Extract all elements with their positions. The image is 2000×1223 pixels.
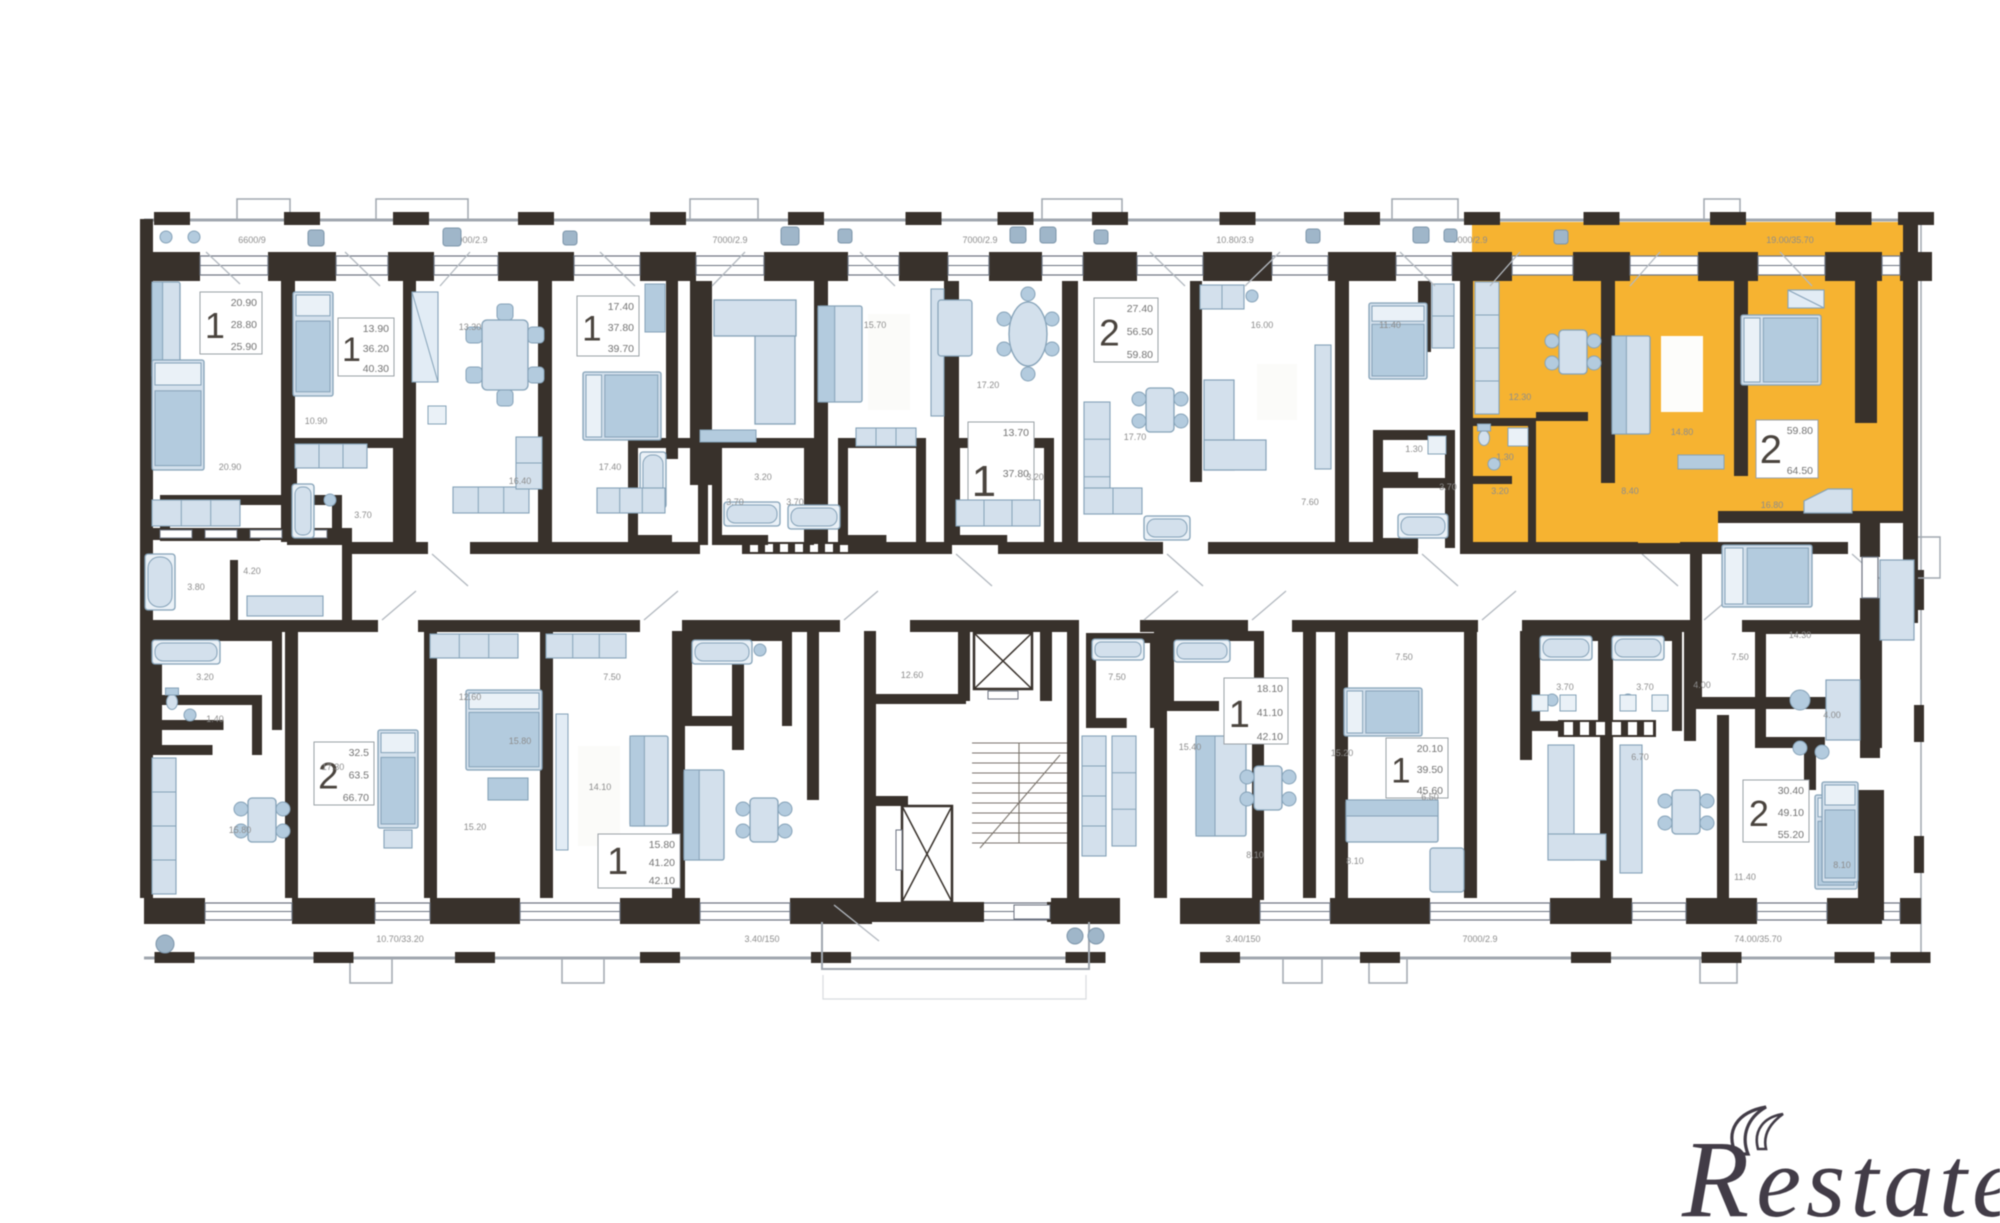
svg-text:3.70: 3.70 <box>1556 682 1574 692</box>
svg-text:17.40: 17.40 <box>599 462 622 472</box>
svg-text:27.40: 27.40 <box>1127 303 1153 315</box>
svg-text:20.10: 20.10 <box>1417 743 1443 755</box>
svg-text:7.50: 7.50 <box>1731 652 1749 662</box>
svg-text:15.80: 15.80 <box>649 839 675 851</box>
svg-text:3.20: 3.20 <box>1491 486 1509 496</box>
svg-text:3.70: 3.70 <box>726 497 744 507</box>
svg-text:13.70: 13.70 <box>1003 427 1029 439</box>
svg-text:15.40: 15.40 <box>1179 742 1202 752</box>
svg-text:1: 1 <box>1229 694 1250 736</box>
svg-text:8.10: 8.10 <box>1246 850 1264 860</box>
svg-text:3.20: 3.20 <box>1026 472 1044 482</box>
svg-text:8.40: 8.40 <box>1621 486 1639 496</box>
svg-text:42.10: 42.10 <box>1257 731 1283 743</box>
svg-text:7.50: 7.50 <box>1395 652 1413 662</box>
svg-text:1: 1 <box>582 309 601 348</box>
svg-text:59.80: 59.80 <box>1127 349 1153 361</box>
svg-text:39.70: 39.70 <box>608 343 634 355</box>
svg-text:20.90: 20.90 <box>219 462 242 472</box>
svg-text:3.70: 3.70 <box>786 497 804 507</box>
svg-text:10.70/33.20: 10.70/33.20 <box>376 934 424 944</box>
svg-text:20.90: 20.90 <box>231 297 257 309</box>
svg-text:3.40/150: 3.40/150 <box>744 934 779 944</box>
svg-text:Restate: Restate <box>1681 1118 2000 1223</box>
svg-text:32.5: 32.5 <box>349 747 370 759</box>
svg-text:18.10: 18.10 <box>1257 683 1283 695</box>
svg-text:7000/2.9: 7000/2.9 <box>1452 235 1487 245</box>
svg-text:55.20: 55.20 <box>1778 829 1804 841</box>
svg-text:3.40/150: 3.40/150 <box>1225 934 1260 944</box>
svg-text:17.40: 17.40 <box>608 301 634 313</box>
svg-text:16.40: 16.40 <box>509 476 532 486</box>
svg-text:1: 1 <box>205 305 225 346</box>
svg-text:37.80: 37.80 <box>608 322 634 334</box>
svg-text:8.10: 8.10 <box>1833 860 1851 870</box>
svg-text:7000/2.9: 7000/2.9 <box>1462 934 1497 944</box>
svg-text:41.10: 41.10 <box>1257 707 1283 719</box>
svg-text:66.70: 66.70 <box>343 792 369 804</box>
svg-text:10.80/3.9: 10.80/3.9 <box>1216 235 1254 245</box>
svg-text:15.20: 15.20 <box>464 822 487 832</box>
svg-text:3.20: 3.20 <box>754 472 772 482</box>
svg-text:36.20: 36.20 <box>363 343 389 355</box>
svg-text:3.20: 3.20 <box>196 672 214 682</box>
svg-text:25.90: 25.90 <box>231 341 257 353</box>
svg-text:1.30: 1.30 <box>1405 444 1423 454</box>
svg-text:41.20: 41.20 <box>649 857 675 869</box>
svg-text:1: 1 <box>1391 751 1410 790</box>
svg-text:3.80: 3.80 <box>187 582 205 592</box>
svg-text:17.30: 17.30 <box>322 762 345 772</box>
svg-text:59.80: 59.80 <box>1787 425 1813 437</box>
svg-text:7000/2.9: 7000/2.9 <box>712 235 747 245</box>
svg-text:6.50: 6.50 <box>1421 792 1439 802</box>
svg-text:13.90: 13.90 <box>363 323 389 335</box>
svg-text:7.50: 7.50 <box>1108 672 1126 682</box>
svg-text:17.70: 17.70 <box>1124 432 1147 442</box>
svg-text:15.20: 15.20 <box>1331 748 1354 758</box>
svg-text:4.00: 4.00 <box>1693 680 1711 690</box>
svg-text:14.10: 14.10 <box>589 782 612 792</box>
svg-text:1: 1 <box>342 331 361 369</box>
svg-text:63.5: 63.5 <box>349 770 370 782</box>
svg-text:40.30: 40.30 <box>363 363 389 375</box>
svg-text:15.80: 15.80 <box>229 825 252 835</box>
svg-text:15.80: 15.80 <box>509 736 532 746</box>
svg-text:16.00: 16.00 <box>1251 320 1274 330</box>
svg-text:7.60: 7.60 <box>1301 497 1319 507</box>
svg-text:6.70: 6.70 <box>1631 752 1649 762</box>
svg-text:7000/2.9: 7000/2.9 <box>962 235 997 245</box>
svg-text:14.80: 14.80 <box>1671 427 1694 437</box>
svg-text:8.10: 8.10 <box>1346 856 1364 866</box>
svg-text:49.10: 49.10 <box>1778 807 1804 819</box>
svg-text:39.50: 39.50 <box>1417 764 1443 776</box>
svg-text:2: 2 <box>1099 312 1120 353</box>
svg-text:11.40: 11.40 <box>1734 872 1756 882</box>
svg-text:11.40: 11.40 <box>1379 320 1401 330</box>
svg-text:10.90: 10.90 <box>305 416 328 426</box>
svg-text:3.70: 3.70 <box>1439 482 1457 492</box>
svg-text:56.50: 56.50 <box>1127 326 1153 338</box>
svg-text:1: 1 <box>972 457 996 506</box>
svg-text:14.30: 14.30 <box>1789 630 1812 640</box>
svg-text:12.30: 12.30 <box>1509 392 1532 402</box>
svg-text:19.00/35.70: 19.00/35.70 <box>1766 235 1814 245</box>
svg-text:64.50: 64.50 <box>1787 465 1813 477</box>
svg-text:37.80: 37.80 <box>1003 468 1029 480</box>
svg-text:74.00/35.70: 74.00/35.70 <box>1734 934 1782 944</box>
svg-text:12.60: 12.60 <box>459 692 482 702</box>
svg-text:12.60: 12.60 <box>901 670 924 680</box>
svg-text:1.40: 1.40 <box>206 714 224 724</box>
svg-text:17.20: 17.20 <box>977 380 1000 390</box>
svg-text:1: 1 <box>607 841 628 883</box>
svg-text:16.80: 16.80 <box>1761 500 1784 510</box>
svg-text:3.70: 3.70 <box>354 510 372 520</box>
svg-text:6600/9: 6600/9 <box>238 235 266 245</box>
svg-text:7.50: 7.50 <box>603 672 621 682</box>
svg-text:13.30: 13.30 <box>459 322 482 332</box>
svg-text:4.00: 4.00 <box>1823 710 1841 720</box>
svg-text:4.20: 4.20 <box>243 566 261 576</box>
svg-text:42.10: 42.10 <box>649 875 675 887</box>
svg-text:2: 2 <box>1749 793 1769 834</box>
svg-text:28.80: 28.80 <box>231 319 257 331</box>
svg-text:2: 2 <box>1760 428 1782 472</box>
svg-text:30.40: 30.40 <box>1778 785 1804 797</box>
svg-text:1.30: 1.30 <box>1496 452 1514 462</box>
svg-text:15.70: 15.70 <box>864 320 887 330</box>
svg-text:3.70: 3.70 <box>1636 682 1654 692</box>
